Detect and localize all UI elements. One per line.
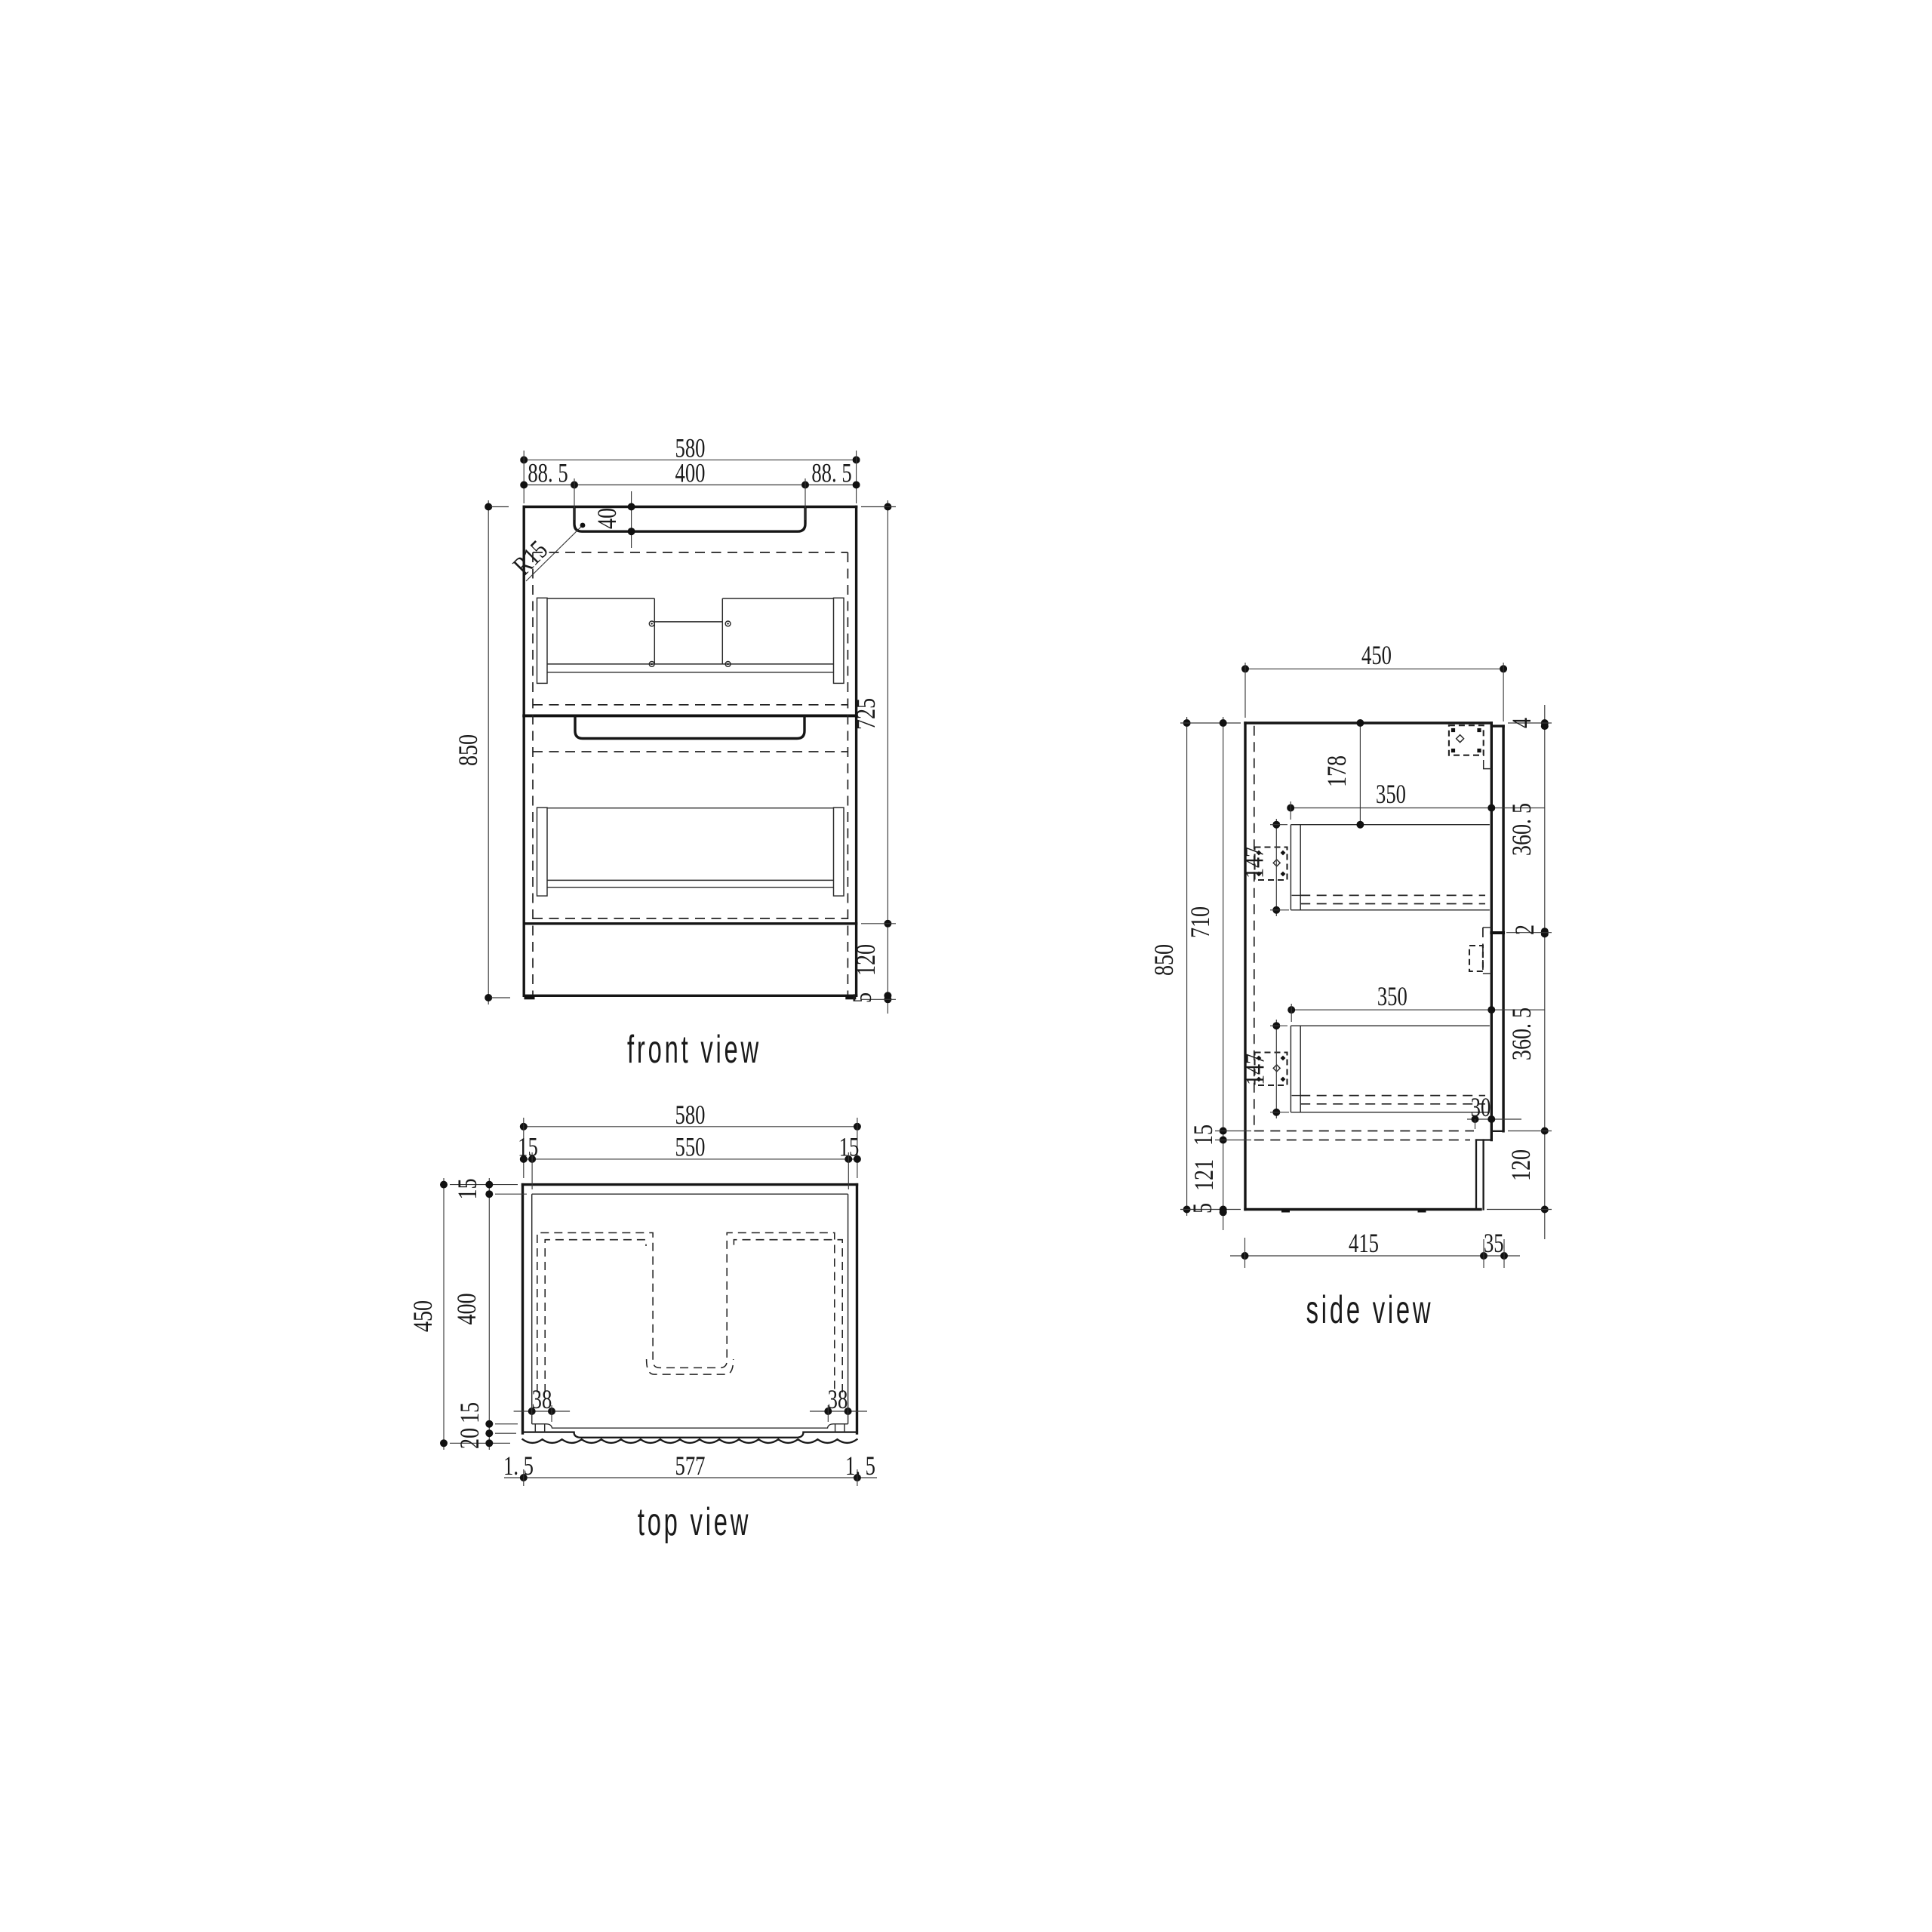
- svg-text:580: 580: [675, 1100, 706, 1130]
- svg-text:400: 400: [451, 1293, 481, 1324]
- svg-text:710: 710: [1185, 906, 1215, 938]
- svg-text:450: 450: [1361, 640, 1392, 670]
- svg-text:2: 2: [1509, 924, 1540, 935]
- svg-text:577: 577: [675, 1451, 706, 1481]
- svg-text:120: 120: [851, 944, 881, 976]
- svg-text:5: 5: [847, 992, 877, 1003]
- svg-text:88. 5: 88. 5: [811, 458, 851, 488]
- svg-text:725: 725: [851, 698, 881, 730]
- svg-text:30: 30: [1471, 1092, 1491, 1122]
- svg-text:850: 850: [453, 734, 483, 766]
- svg-text:5: 5: [1187, 1203, 1217, 1214]
- svg-text:20: 20: [454, 1428, 485, 1449]
- svg-text:360. 5: 360. 5: [1506, 803, 1537, 856]
- svg-text:147: 147: [1239, 1054, 1269, 1085]
- svg-text:550: 550: [675, 1132, 706, 1162]
- svg-text:400: 400: [675, 458, 706, 488]
- svg-text:88. 5: 88. 5: [528, 458, 568, 488]
- svg-text:415: 415: [1349, 1228, 1379, 1258]
- svg-text:side view: side view: [1306, 1289, 1434, 1332]
- svg-text:147: 147: [1238, 847, 1269, 878]
- svg-text:15: 15: [452, 1178, 482, 1199]
- svg-text:15: 15: [1188, 1124, 1218, 1146]
- svg-text:120: 120: [1506, 1149, 1536, 1181]
- svg-text:15: 15: [839, 1132, 860, 1162]
- svg-text:15: 15: [454, 1402, 485, 1423]
- svg-text:4: 4: [1506, 718, 1537, 728]
- svg-text:850: 850: [1149, 944, 1179, 976]
- svg-text:15: 15: [518, 1132, 538, 1162]
- svg-text:178: 178: [1321, 755, 1352, 787]
- svg-text:121: 121: [1189, 1159, 1219, 1191]
- svg-text:450: 450: [408, 1300, 438, 1332]
- svg-text:38: 38: [828, 1384, 848, 1414]
- svg-text:40: 40: [592, 508, 622, 529]
- svg-text:front view: front view: [627, 1029, 761, 1072]
- svg-text:35: 35: [1484, 1228, 1504, 1258]
- svg-text:360. 5: 360. 5: [1506, 1008, 1537, 1060]
- svg-text:1. 5: 1. 5: [845, 1451, 875, 1481]
- svg-text:top view: top view: [638, 1501, 751, 1544]
- svg-text:38: 38: [532, 1384, 552, 1414]
- svg-text:350: 350: [1377, 981, 1407, 1011]
- svg-text:350: 350: [1376, 779, 1406, 809]
- svg-text:1. 5: 1. 5: [503, 1451, 534, 1481]
